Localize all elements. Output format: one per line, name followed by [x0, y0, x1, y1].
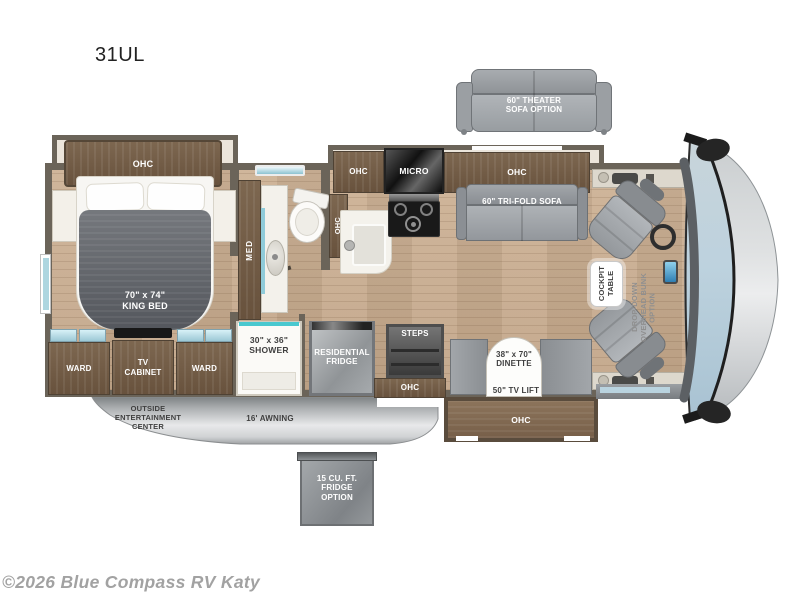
dash-monitor: [663, 260, 678, 284]
tv-cabinet-label: TV CABINET: [125, 358, 162, 377]
trifold-sofa-armrest-left: [456, 187, 467, 240]
shower-label: 30" x 36" SHOWER: [236, 335, 302, 355]
med-cabinet: MED: [238, 180, 261, 320]
glass-top-2: [79, 329, 106, 342]
dinette-slideout-notch-left: [456, 436, 478, 441]
bath-sink-drain: [272, 254, 278, 260]
burner-1: [394, 203, 407, 216]
dinette-label: 38" x 70" DINETTE: [482, 350, 546, 369]
bedroom-window-glass: [43, 258, 49, 310]
overhead-bunk-option: DROP-DOWN OVERHEAD BUNK OPTION: [626, 246, 662, 368]
bath-skylight: [255, 165, 305, 176]
kitchen-sink: [352, 224, 386, 266]
entry-ohc-label: OHC: [374, 383, 446, 392]
glass-top-3: [177, 329, 204, 342]
residential-fridge-label: RESIDENTIAL FRIDGE: [309, 348, 375, 367]
fridge-option-lid: [297, 452, 377, 461]
copyright: ©2026 Blue Compass RV Katy: [2, 572, 260, 593]
burner-3-center: [411, 222, 416, 227]
wardrobe-right-label: WARD: [192, 364, 217, 373]
dash-speaker-top: [598, 172, 609, 183]
theater-sofa-foot-left: [461, 129, 467, 135]
fridge-option-label: 15 CU. FT. FRIDGE OPTION: [300, 474, 374, 502]
tv-screen: [114, 328, 172, 338]
trifold-sofa: 60" TRI-FOLD SOFA: [456, 184, 588, 243]
pillow-right: [147, 182, 206, 212]
burner-3: [405, 216, 421, 232]
theater-sofa-foot-right: [601, 129, 607, 135]
microwave-label: MICRO: [399, 166, 428, 176]
living-ohc-label: OHC: [444, 167, 590, 177]
step-edge-1: [391, 349, 439, 352]
tv-lift-label: 50" TV LIFT: [472, 386, 560, 395]
dinette-slideout-notch-right: [564, 436, 590, 441]
glass-top-1: [50, 329, 77, 342]
trifold-sofa-seam: [521, 205, 523, 241]
cockpit-table-label: COCKPIT TABLE: [598, 266, 616, 301]
wardrobe-right: WARD: [176, 342, 233, 395]
bedroom-ohc-label: OHC: [64, 159, 222, 170]
step-edge-2: [391, 363, 439, 366]
bath-towel-bar: [261, 208, 265, 294]
shower-tray: [242, 372, 296, 390]
toilet-bowl-inner: [295, 208, 319, 236]
residential-fridge-handle: [312, 322, 372, 330]
pillow-left: [86, 182, 145, 212]
tv-cabinet: TV CABINET: [112, 340, 174, 395]
king-bed-label: 70" x 74" KING BED: [79, 290, 211, 311]
theater-sofa-label: 60" THEATER SOFA OPTION: [466, 96, 602, 115]
outside-entertainment-label: OUTSIDE ENTERTAINMENT CENTER: [100, 405, 196, 432]
burner-2: [420, 203, 433, 216]
page-title: 31UL: [95, 44, 145, 67]
med-cabinet-label: MED: [245, 240, 254, 261]
kitchen-ohc: OHC: [333, 151, 384, 193]
microwave: MICRO: [384, 148, 444, 194]
theater-sofa-option: 60" THEATER SOFA OPTION: [456, 66, 612, 136]
cockpit-table: COCKPIT TABLE: [590, 261, 623, 307]
wardrobe-left-label: WARD: [66, 364, 91, 373]
nightstand-left: [52, 190, 78, 242]
kitchen-faucet: [344, 240, 355, 251]
trifold-sofa-label: 60" TRI-FOLD SOFA: [456, 197, 588, 206]
kitchen-slideout-notch: [472, 146, 562, 150]
kitchen-ohc-label: OHC: [349, 167, 367, 176]
floorplan-canvas: 31UL 60" THEATER SOFA OPTION OUTSIDE ENT…: [0, 0, 800, 600]
overhead-bunk-option-label: DROP-DOWN OVERHEAD BUNK OPTION: [631, 273, 658, 342]
awning-label: 16' AWNING: [238, 414, 302, 423]
shower-glass-door: [239, 322, 299, 326]
dinette-ohc-label: OHC: [444, 415, 598, 425]
range-hood: [389, 194, 439, 201]
glass-top-4: [205, 329, 232, 342]
wardrobe-left: WARD: [48, 342, 110, 395]
king-bed-blanket: [79, 210, 211, 330]
entry-steps-label: STEPS: [386, 329, 444, 338]
